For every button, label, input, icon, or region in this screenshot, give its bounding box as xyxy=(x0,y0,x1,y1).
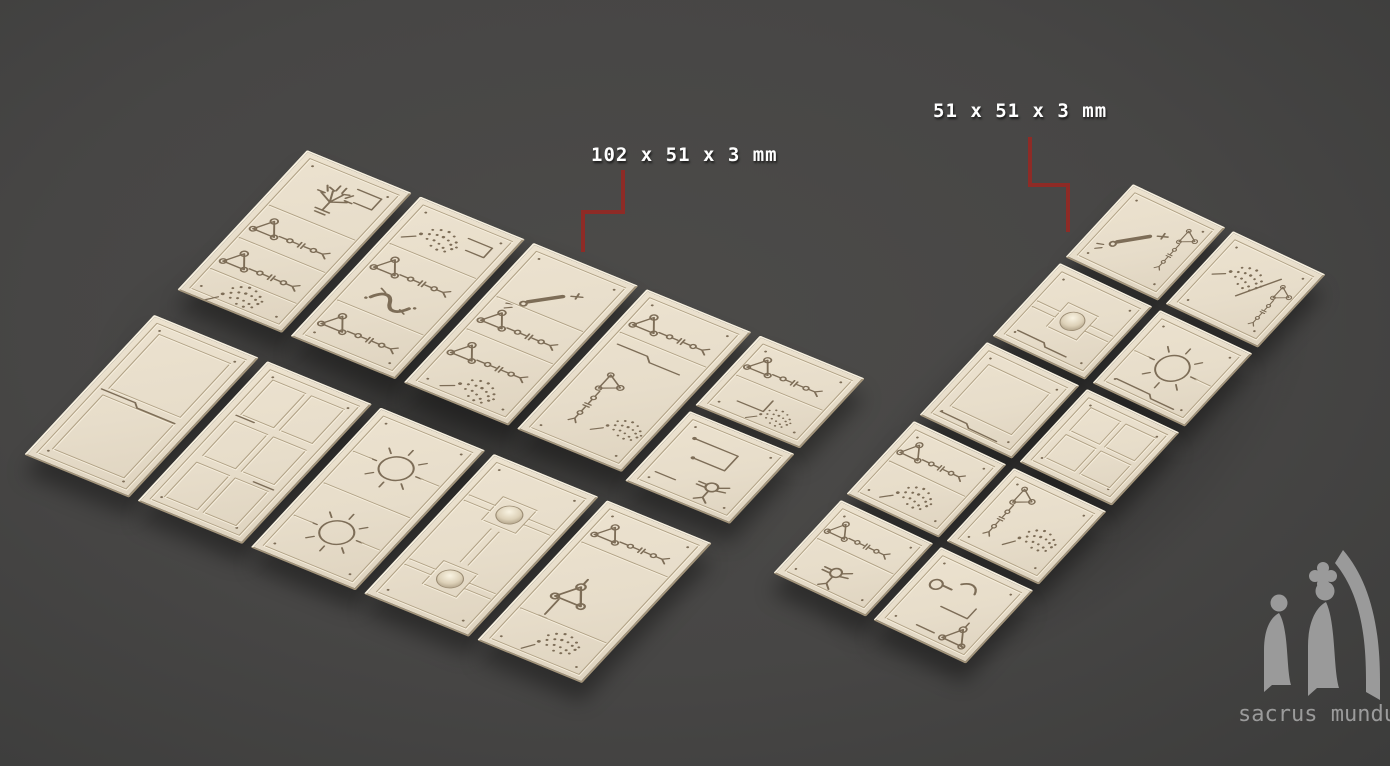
sacrus-mundus-logo: sacrus mundus xyxy=(1238,546,1390,727)
dimension-label-long-tile: 102 x 51 x 3 mm xyxy=(591,144,778,166)
render-scene xyxy=(0,0,1390,766)
logo-text: sacrus mundus xyxy=(1238,702,1390,727)
logo-arch-icon xyxy=(1239,546,1389,704)
dimension-label-square-tile: 51 x 51 x 3 mm xyxy=(933,100,1107,122)
